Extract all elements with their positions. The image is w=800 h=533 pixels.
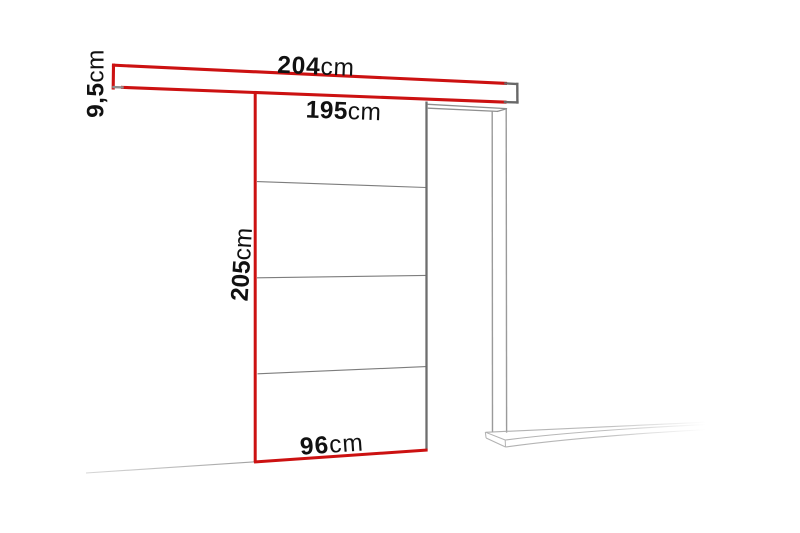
svg-text:195cm: 195cm <box>305 97 381 127</box>
svg-text:205cm: 205cm <box>227 227 258 302</box>
svg-text:9,5cm: 9,5cm <box>83 49 110 118</box>
svg-text:96cm: 96cm <box>299 429 365 460</box>
svg-text:204cm: 204cm <box>277 52 356 82</box>
